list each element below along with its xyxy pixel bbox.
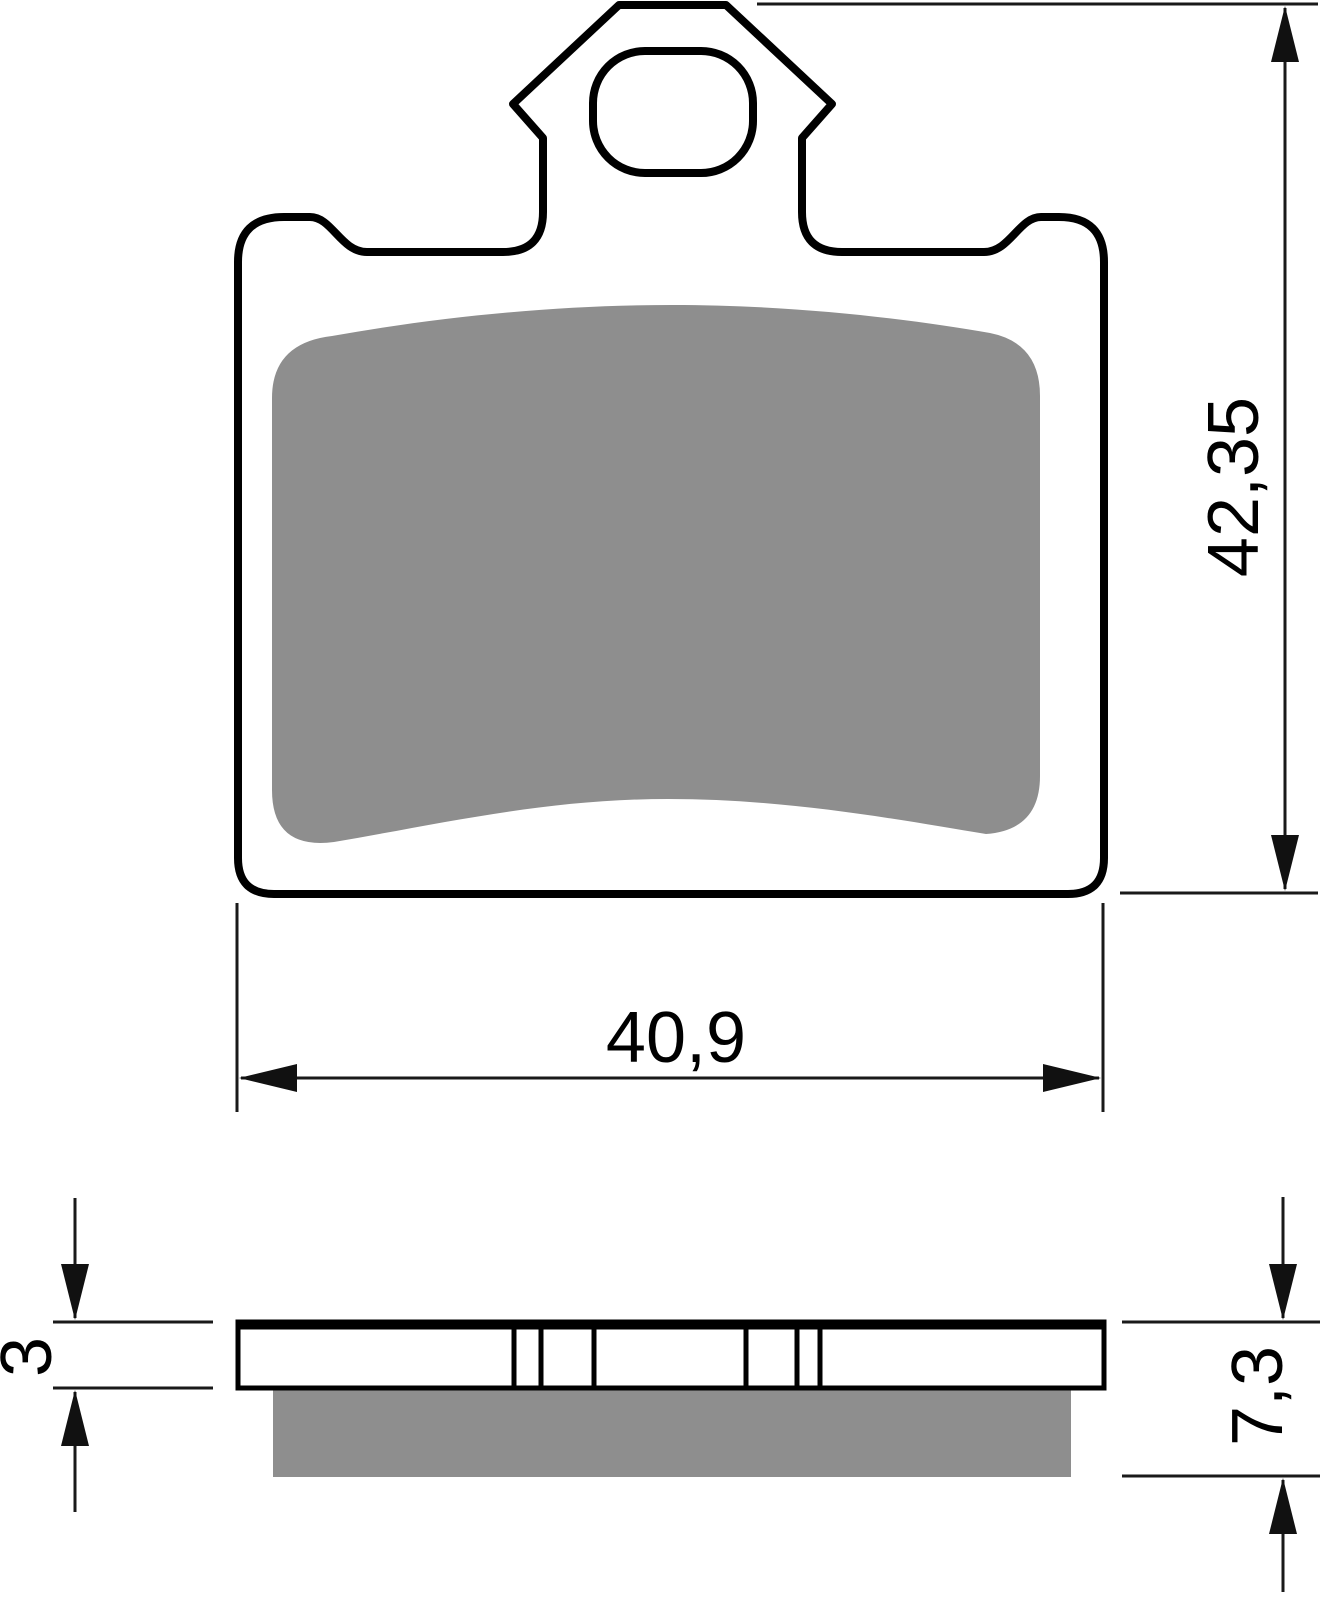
arrowhead-up <box>1271 6 1299 62</box>
friction-pad-side <box>273 1389 1071 1477</box>
dimension-overall-width: 40,9 <box>237 903 1103 1112</box>
dimension-backplate-thickness: 3 <box>0 1198 213 1512</box>
arrowhead-down <box>61 1264 89 1320</box>
tab-hole <box>593 51 753 173</box>
arrowhead-down <box>1269 1264 1297 1320</box>
dimension-label-total-thickness: 7,3 <box>1218 1346 1298 1446</box>
front-view <box>238 5 1104 894</box>
side-view <box>238 1322 1104 1477</box>
brake-pad-drawing: 42,35 40,9 3 <box>0 0 1325 1600</box>
arrowhead-left <box>239 1064 297 1092</box>
friction-pad-front <box>272 305 1040 843</box>
dimension-label-plate-thickness: 3 <box>0 1337 67 1377</box>
dimension-label-width: 40,9 <box>606 998 746 1078</box>
arrowhead-right <box>1043 1064 1101 1092</box>
drawing-canvas: 42,35 40,9 3 <box>0 0 1325 1600</box>
arrowhead-up <box>1269 1478 1297 1534</box>
arrowhead-up <box>61 1390 89 1446</box>
dimension-total-thickness: 7,3 <box>1122 1197 1320 1592</box>
backplate-side <box>238 1322 1104 1388</box>
dimension-label-height: 42,35 <box>1194 397 1274 577</box>
arrowhead-down <box>1271 835 1299 891</box>
